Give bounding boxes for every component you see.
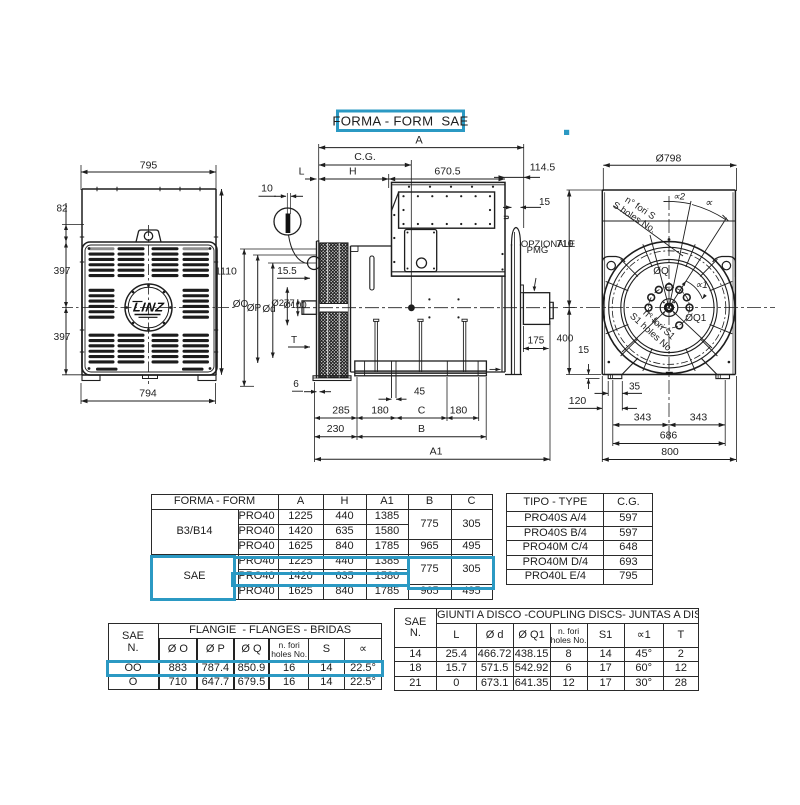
svg-text:H: H xyxy=(349,166,357,178)
svg-text:82: 82 xyxy=(56,204,68,215)
svg-text:B: B xyxy=(418,423,425,435)
svg-text:∝1: ∝1 xyxy=(695,280,708,291)
svg-text:175: 175 xyxy=(528,336,545,347)
svg-text:15: 15 xyxy=(539,197,551,208)
svg-text:180: 180 xyxy=(371,405,389,417)
svg-text:10: 10 xyxy=(261,183,273,195)
svg-text:C: C xyxy=(418,405,426,417)
svg-text:ØQ: ØQ xyxy=(653,266,669,277)
svg-text:400: 400 xyxy=(557,334,574,345)
svg-text:45: 45 xyxy=(414,386,426,397)
svg-text:Ø798: Ø798 xyxy=(656,152,682,164)
svg-text:ØQ1: ØQ1 xyxy=(685,313,707,324)
svg-text:∝: ∝ xyxy=(705,197,713,209)
svg-text:35: 35 xyxy=(629,382,641,393)
svg-text:114.5: 114.5 xyxy=(530,162,556,174)
svg-text:T: T xyxy=(291,335,297,346)
svg-text:397: 397 xyxy=(54,332,71,343)
svg-text:670.5: 670.5 xyxy=(434,166,460,178)
svg-text:397: 397 xyxy=(54,266,71,277)
svg-text:794: 794 xyxy=(139,388,157,400)
svg-text:285: 285 xyxy=(332,405,350,417)
svg-text:180: 180 xyxy=(450,405,468,417)
svg-text:15: 15 xyxy=(578,345,590,356)
svg-text:120: 120 xyxy=(569,395,587,407)
svg-text:A: A xyxy=(415,135,423,147)
svg-text:FORMA - FORM SAE: FORMA - FORM SAE xyxy=(332,114,468,129)
svg-text:343: 343 xyxy=(634,411,652,423)
svg-text:795: 795 xyxy=(140,160,158,172)
svg-text:800: 800 xyxy=(661,446,679,458)
svg-text:710: 710 xyxy=(557,239,574,250)
svg-text:230: 230 xyxy=(327,423,345,435)
svg-text:Ø100: Ø100 xyxy=(283,300,306,311)
svg-text:A1: A1 xyxy=(430,446,443,458)
svg-text:686: 686 xyxy=(660,430,678,442)
svg-text:ØP: ØP xyxy=(247,303,262,314)
svg-text:6: 6 xyxy=(293,379,299,390)
svg-text:L: L xyxy=(299,166,305,178)
svg-text:15.5: 15.5 xyxy=(277,266,297,277)
svg-text:1110: 1110 xyxy=(215,266,237,278)
svg-text:343: 343 xyxy=(690,411,708,423)
svg-text:C.G.: C.G. xyxy=(354,151,376,163)
svg-text:∝2: ∝2 xyxy=(673,192,686,203)
